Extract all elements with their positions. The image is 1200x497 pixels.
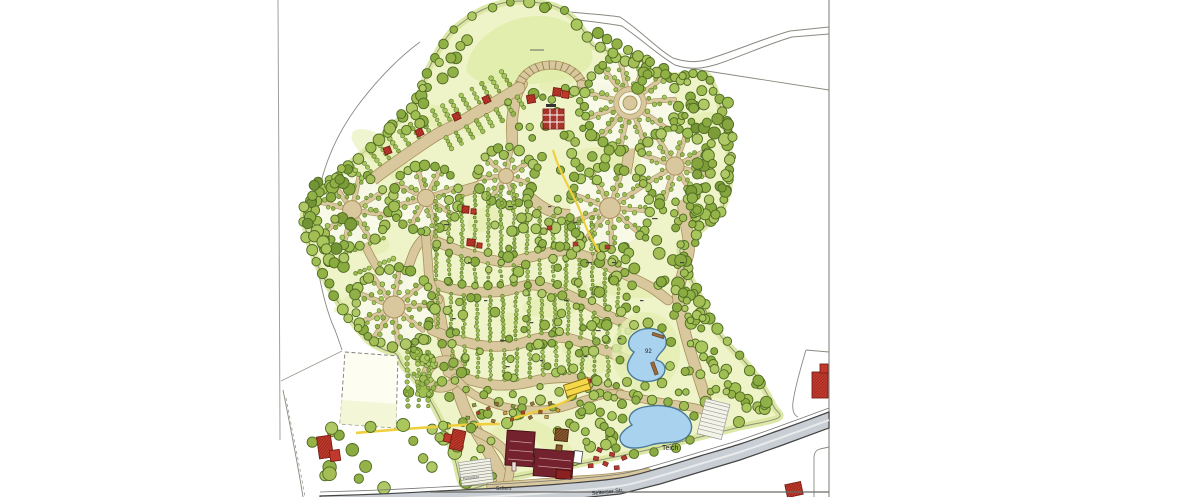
svg-text:Teich: Teich	[662, 445, 678, 452]
svg-text:Selters: Selters	[496, 486, 512, 492]
svg-text:92: 92	[645, 349, 652, 355]
